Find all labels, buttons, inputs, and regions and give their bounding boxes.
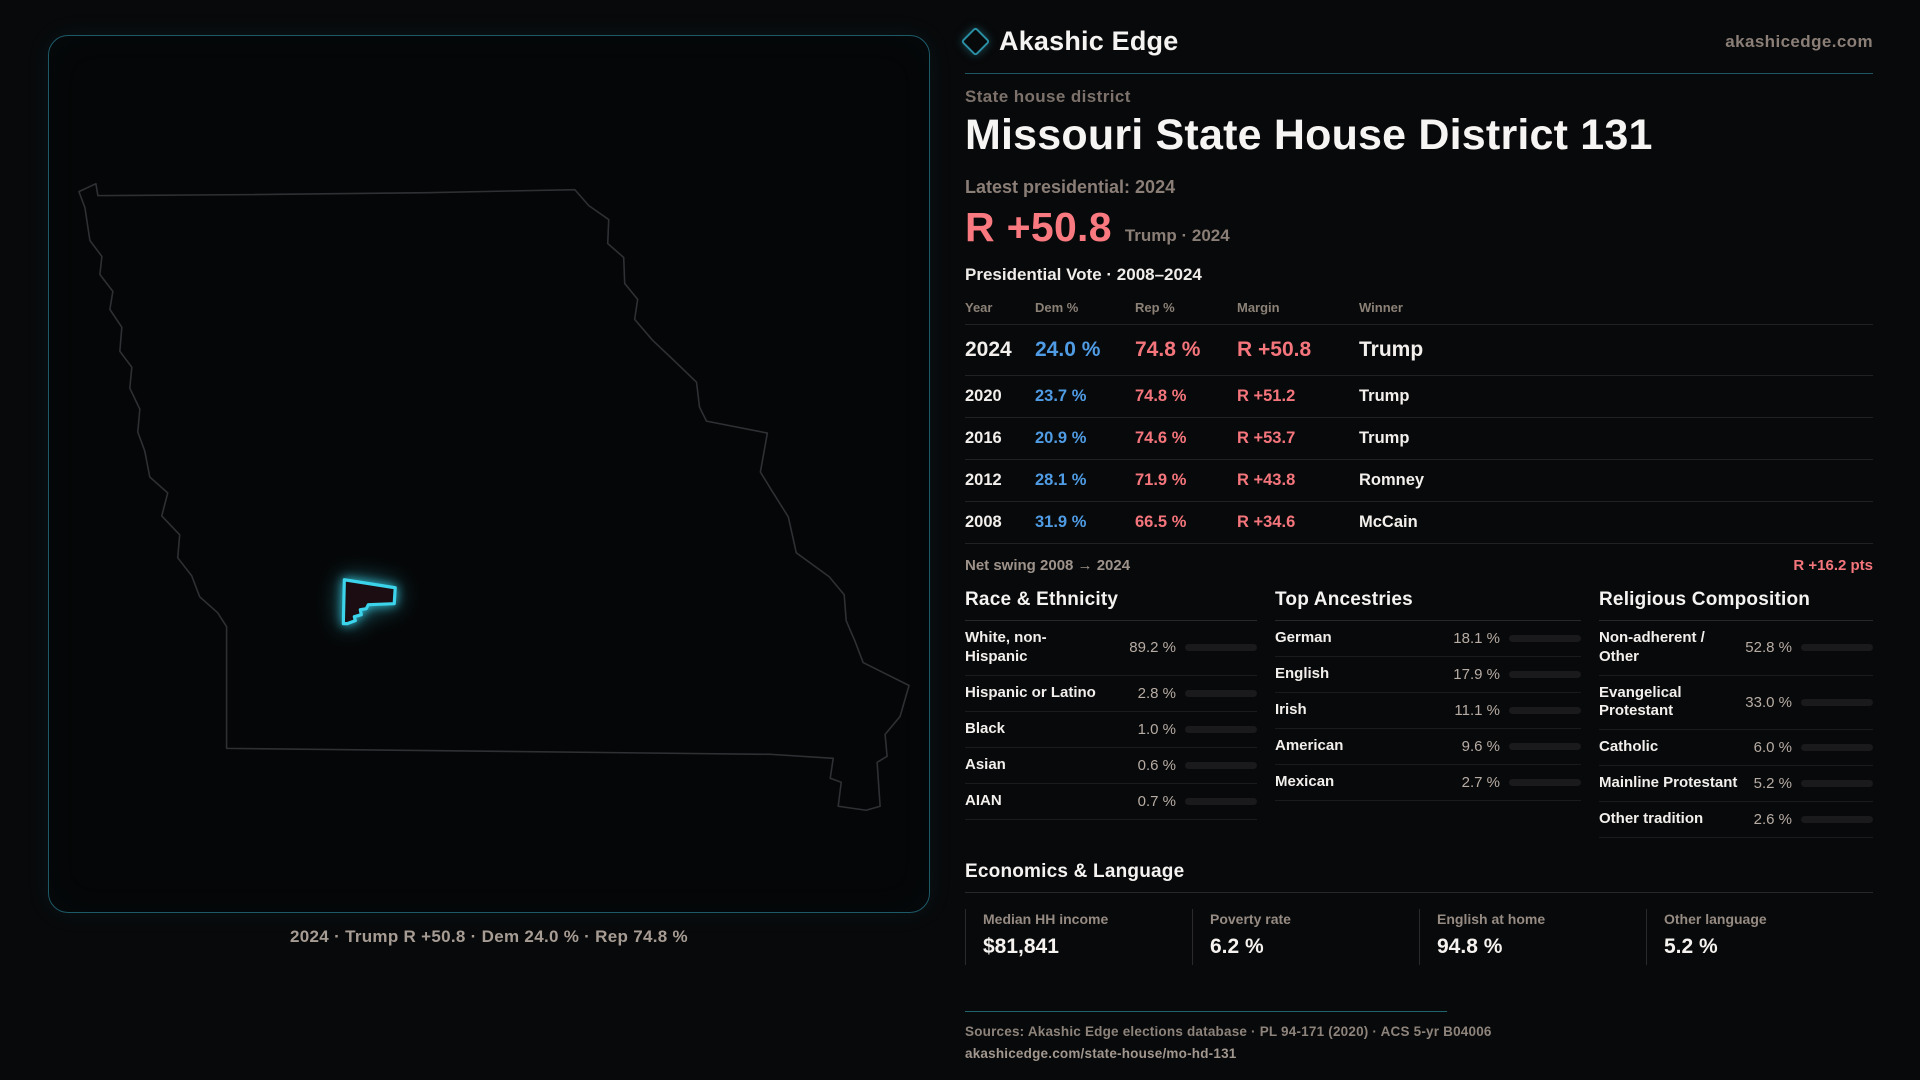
bar-track <box>1185 644 1257 651</box>
col-winner: Winner <box>1359 300 1873 315</box>
religion-column: Religious Composition Non-adherent / Oth… <box>1599 589 1873 838</box>
missouri-map <box>49 36 929 912</box>
state-map-panel <box>48 35 930 913</box>
net-swing-label: Net swing 2008 → 2024 <box>965 557 1130 574</box>
stat-median-income: Median HH income $81,841 <box>965 909 1192 965</box>
net-swing-value: R +16.2 pts <box>1793 557 1873 574</box>
table-row: 2016 20.9 % 74.6 % R +53.7 Trump <box>965 418 1873 460</box>
col-margin: Margin <box>1237 300 1359 315</box>
cell-margin: R +50.8 <box>1237 338 1359 362</box>
cell-dem: 31.9 % <box>1035 513 1135 532</box>
list-item: Evangelical Protestant 33.0 % <box>1599 676 1873 731</box>
cell-year: 2024 <box>965 338 1035 362</box>
list-item: Black 1.0 % <box>965 712 1257 748</box>
list-item: Non-adherent / Other 52.8 % <box>1599 621 1873 676</box>
latest-presidential-label: Latest presidential: 2024 <box>965 177 1873 198</box>
bar-track <box>1185 798 1257 805</box>
stat-poverty-rate: Poverty rate 6.2 % <box>1192 909 1419 965</box>
race-title: Race & Ethnicity <box>965 589 1257 621</box>
vote-table-header: Year Dem % Rep % Margin Winner <box>965 293 1873 325</box>
cell-margin: R +34.6 <box>1237 513 1359 532</box>
cell-rep: 74.8 % <box>1135 338 1237 362</box>
cell-margin: R +53.7 <box>1237 429 1359 448</box>
detail-panel: Akashic Edge akashicedge.com State house… <box>965 26 1873 1061</box>
bar-track <box>1801 816 1873 823</box>
diamond-logo-icon <box>961 27 991 57</box>
list-item: Mexican 2.7 % <box>1275 765 1581 801</box>
bar-track <box>1509 743 1581 750</box>
cell-rep: 74.6 % <box>1135 429 1237 448</box>
cell-winner: McCain <box>1359 513 1873 532</box>
cell-year: 2016 <box>965 429 1035 448</box>
cell-margin: R +43.8 <box>1237 471 1359 490</box>
district-type-label: State house district <box>965 87 1873 107</box>
sources-line: Sources: Akashic Edge elections database… <box>965 1024 1873 1039</box>
table-row: 2024 24.0 % 74.8 % R +50.8 Trump <box>965 325 1873 376</box>
bar-track <box>1185 726 1257 733</box>
bar-track <box>1185 762 1257 769</box>
race-ethnicity-column: Race & Ethnicity White, non-Hispanic 89.… <box>965 589 1257 838</box>
bar-track <box>1801 780 1873 787</box>
footer-divider <box>965 1011 1447 1012</box>
map-caption: 2024 · Trump R +50.8 · Dem 24.0 % · Rep … <box>48 927 930 947</box>
cell-year: 2012 <box>965 471 1035 490</box>
list-item: White, non-Hispanic 89.2 % <box>965 621 1257 676</box>
list-item: Other tradition 2.6 % <box>1599 802 1873 838</box>
cell-dem: 24.0 % <box>1035 338 1135 362</box>
economics-stats: Median HH income $81,841 Poverty rate 6.… <box>965 909 1873 965</box>
bar-track <box>1509 779 1581 786</box>
bar-track <box>1801 699 1873 706</box>
col-year: Year <box>965 300 1035 315</box>
ancestry-title: Top Ancestries <box>1275 589 1581 621</box>
cell-year: 2020 <box>965 387 1035 406</box>
cell-winner: Trump <box>1359 387 1873 406</box>
list-item: American 9.6 % <box>1275 729 1581 765</box>
missouri-outline <box>79 184 909 811</box>
bar-track <box>1509 635 1581 642</box>
page-title: Missouri State House District 131 <box>965 111 1873 160</box>
table-row: 2008 31.9 % 66.5 % R +34.6 McCain <box>965 502 1873 544</box>
cell-winner: Trump <box>1359 338 1873 362</box>
bar-track <box>1509 707 1581 714</box>
list-item: Hispanic or Latino 2.8 % <box>965 676 1257 712</box>
economics-title: Economics & Language <box>965 861 1873 893</box>
col-dem: Dem % <box>1035 300 1135 315</box>
site-link[interactable]: akashicedge.com <box>1725 32 1873 52</box>
list-item: Asian 0.6 % <box>965 748 1257 784</box>
bar-track <box>1509 671 1581 678</box>
table-row: 2012 28.1 % 71.9 % R +43.8 Romney <box>965 460 1873 502</box>
margin-value: R +50.8 <box>965 204 1112 251</box>
cell-winner: Trump <box>1359 429 1873 448</box>
economics-section: Economics & Language Median HH income $8… <box>965 861 1873 965</box>
bar-track <box>1801 744 1873 751</box>
net-swing-row: Net swing 2008 → 2024 R +16.2 pts <box>965 544 1873 574</box>
list-item: Mainline Protestant 5.2 % <box>1599 766 1873 802</box>
demographics-section: Race & Ethnicity White, non-Hispanic 89.… <box>965 589 1873 838</box>
stat-english-at-home: English at home 94.8 % <box>1419 909 1646 965</box>
col-rep: Rep % <box>1135 300 1237 315</box>
religion-title: Religious Composition <box>1599 589 1873 621</box>
cell-dem: 23.7 % <box>1035 387 1135 406</box>
list-item: German 18.1 % <box>1275 621 1581 657</box>
list-item: English 17.9 % <box>1275 657 1581 693</box>
brand: Akashic Edge <box>965 26 1178 57</box>
cell-rep: 66.5 % <box>1135 513 1237 532</box>
cell-dem: 20.9 % <box>1035 429 1135 448</box>
cell-rep: 71.9 % <box>1135 471 1237 490</box>
cell-year: 2008 <box>965 513 1035 532</box>
ancestry-column: Top Ancestries German 18.1 % English 17.… <box>1275 589 1581 838</box>
vote-table: Year Dem % Rep % Margin Winner 2024 24.0… <box>965 293 1873 544</box>
brand-name: Akashic Edge <box>999 26 1178 57</box>
list-item: Catholic 6.0 % <box>1599 730 1873 766</box>
list-item: AIAN 0.7 % <box>965 784 1257 820</box>
cell-margin: R +51.2 <box>1237 387 1359 406</box>
list-item: Irish 11.1 % <box>1275 693 1581 729</box>
table-row: 2020 23.7 % 74.8 % R +51.2 Trump <box>965 376 1873 418</box>
cell-rep: 74.8 % <box>1135 387 1237 406</box>
bar-track <box>1801 644 1873 651</box>
panel-header: Akashic Edge akashicedge.com <box>965 26 1873 74</box>
footer: Sources: Akashic Edge elections database… <box>965 1011 1873 1061</box>
bar-track <box>1185 690 1257 697</box>
headline-margin: R +50.8 Trump · 2024 <box>965 204 1873 251</box>
cell-dem: 28.1 % <box>1035 471 1135 490</box>
cell-winner: Romney <box>1359 471 1873 490</box>
stat-other-language: Other language 5.2 % <box>1646 909 1873 965</box>
footer-url[interactable]: akashicedge.com/state-house/mo-hd-131 <box>965 1046 1873 1061</box>
district-shape[interactable] <box>343 580 395 624</box>
margin-context: Trump · 2024 <box>1125 226 1230 246</box>
vote-table-title: Presidential Vote · 2008–2024 <box>965 265 1873 285</box>
